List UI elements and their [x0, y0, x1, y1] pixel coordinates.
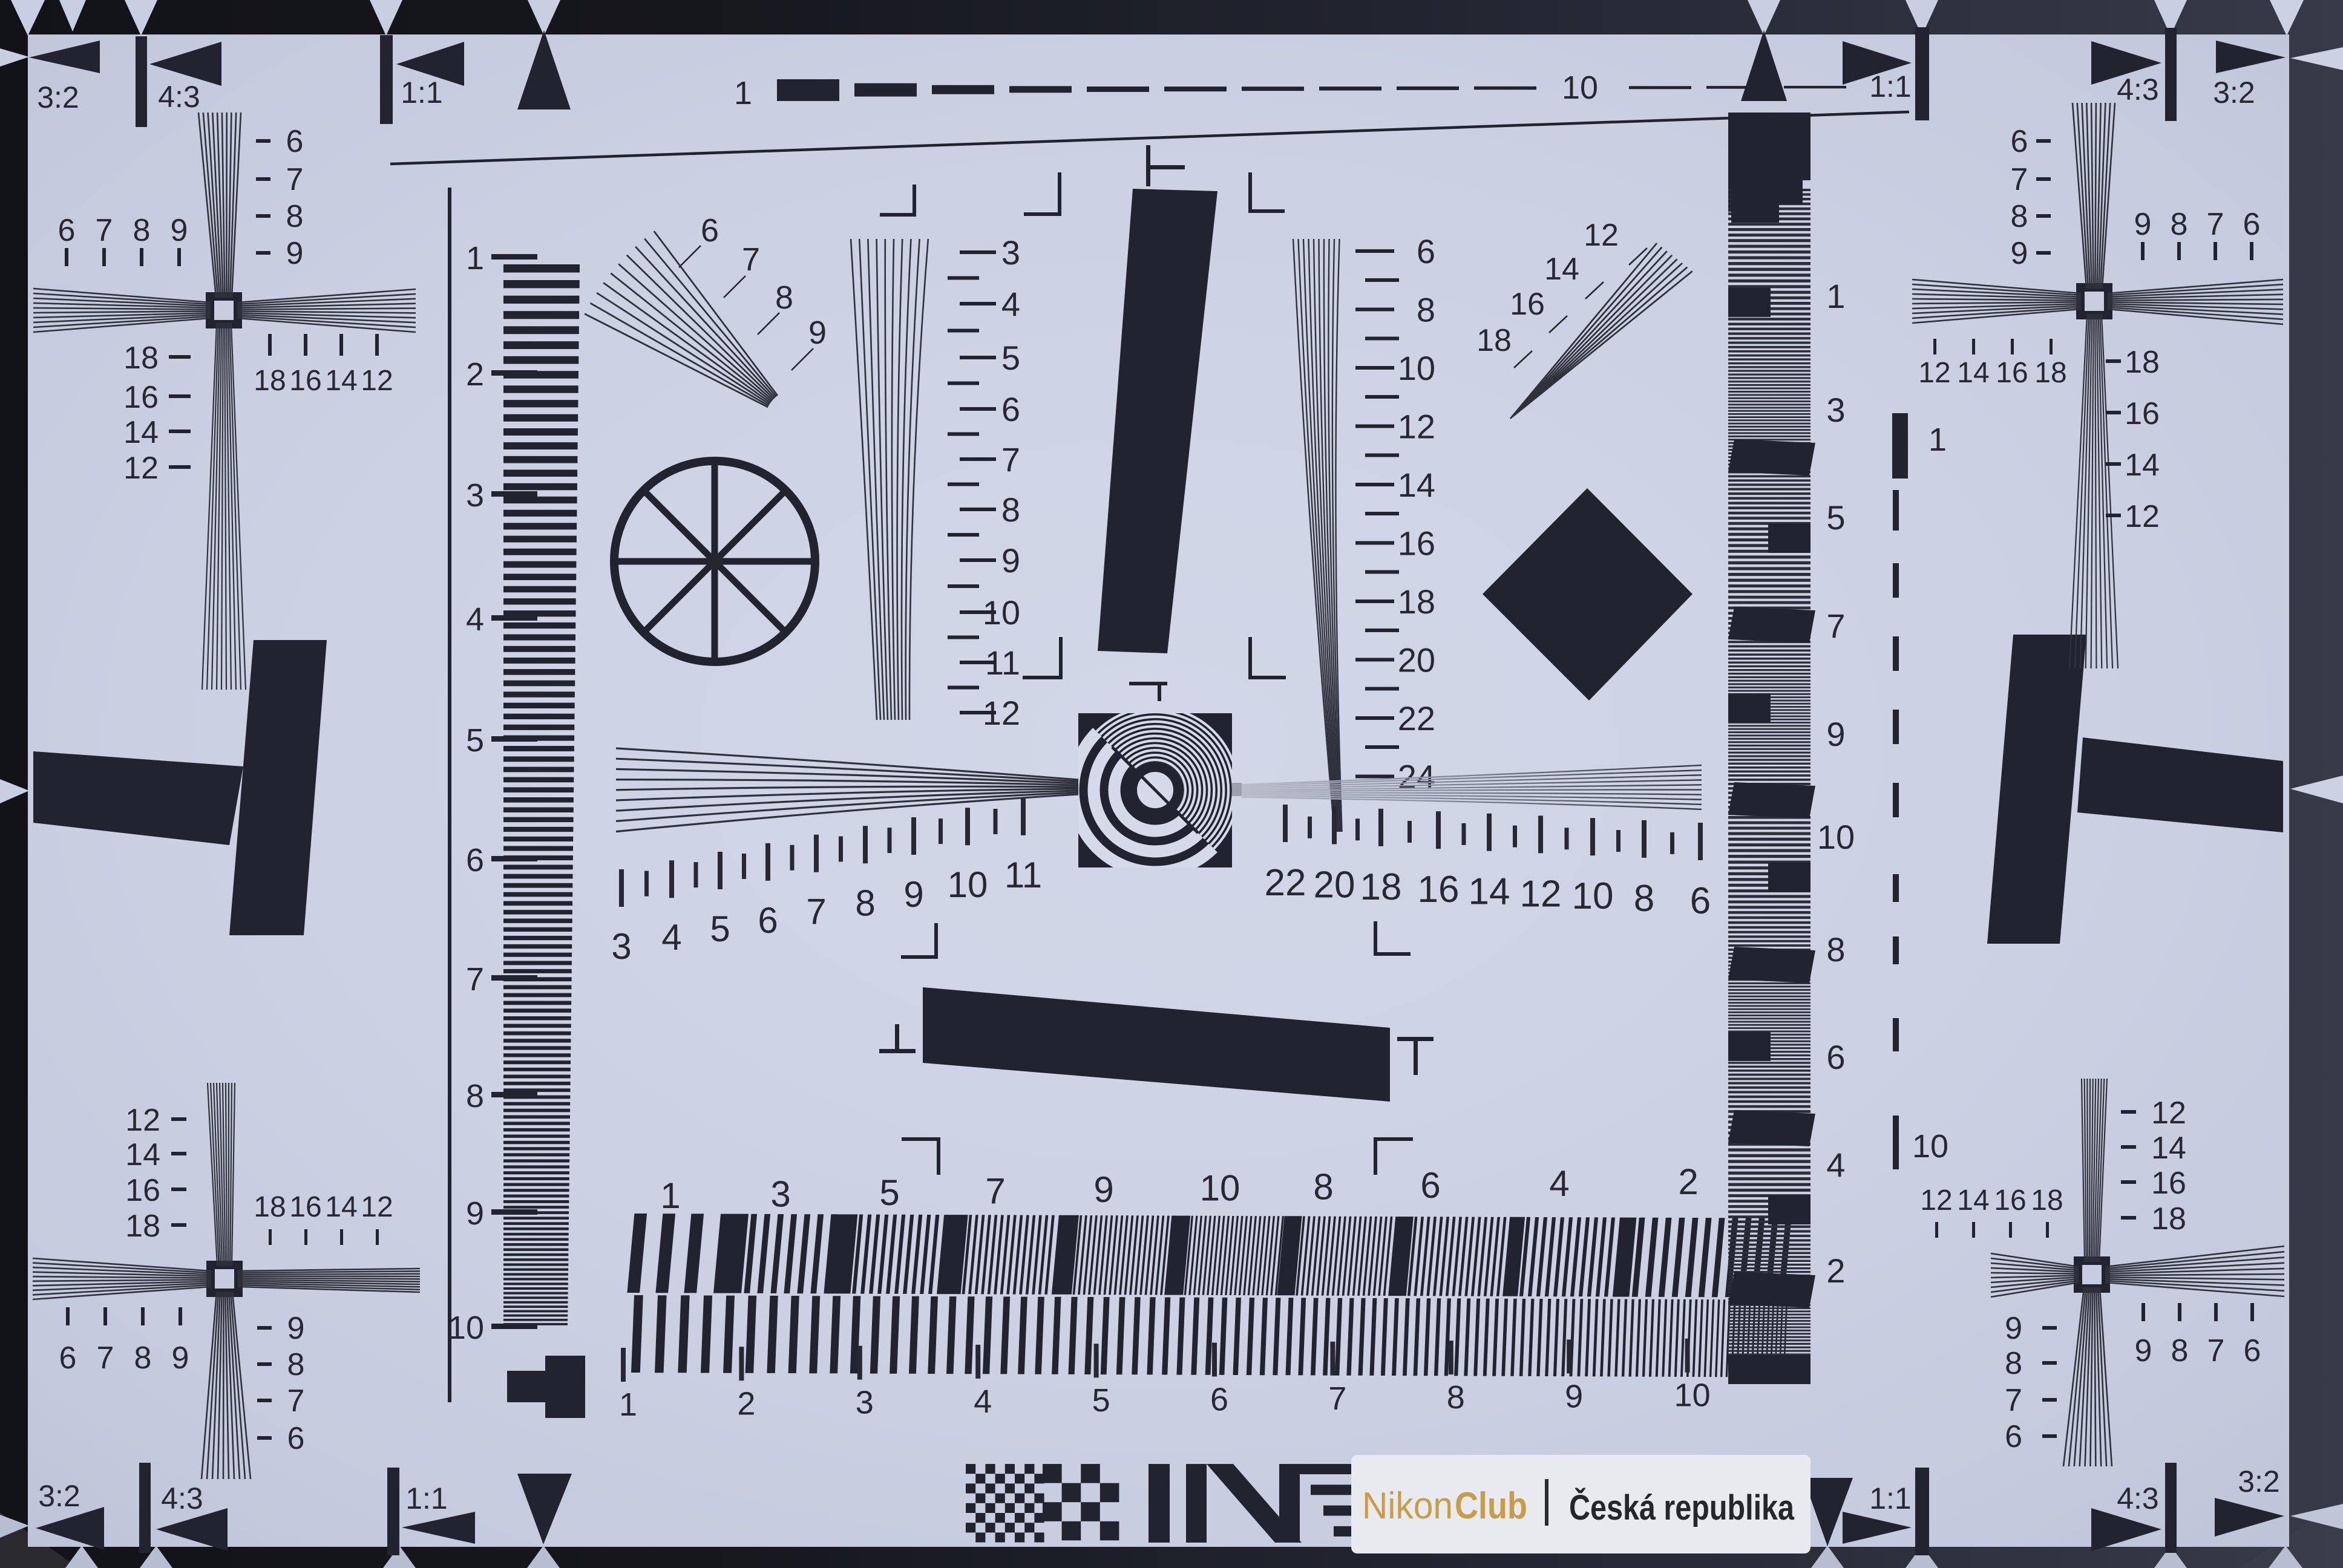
svg-text:5: 5: [879, 1172, 899, 1213]
svg-text:4: 4: [974, 1383, 992, 1420]
svg-text:6: 6: [287, 1421, 305, 1456]
svg-text:12: 12: [361, 1191, 393, 1223]
svg-text:8: 8: [286, 199, 304, 234]
svg-text:1: 1: [466, 240, 484, 276]
svg-text:3: 3: [770, 1174, 790, 1214]
svg-text:12: 12: [125, 1103, 160, 1138]
svg-text:6: 6: [1420, 1165, 1440, 1206]
svg-text:12: 12: [1920, 1184, 1952, 1217]
svg-text:8: 8: [2171, 1333, 2189, 1368]
svg-text:6: 6: [286, 124, 304, 159]
svg-text:8: 8: [1826, 930, 1845, 969]
svg-text:1:1: 1:1: [1869, 70, 1912, 103]
svg-text:3: 3: [1001, 234, 1020, 272]
svg-text:18: 18: [125, 1209, 160, 1244]
svg-text:3:2: 3:2: [38, 1479, 80, 1513]
svg-text:12: 12: [1918, 357, 1950, 389]
svg-text:8: 8: [775, 279, 793, 316]
svg-text:8: 8: [1447, 1379, 1465, 1416]
svg-text:12: 12: [123, 451, 159, 486]
svg-text:4:3: 4:3: [2117, 1481, 2159, 1515]
svg-text:6: 6: [2243, 207, 2261, 242]
svg-text:22: 22: [1398, 699, 1435, 737]
svg-text:8: 8: [466, 1078, 484, 1114]
svg-text:7: 7: [466, 961, 484, 998]
svg-text:7: 7: [1001, 440, 1020, 479]
svg-text:7: 7: [1328, 1380, 1346, 1417]
svg-text:18: 18: [2125, 345, 2160, 380]
svg-text:1: 1: [660, 1175, 680, 1216]
svg-text:9: 9: [1001, 541, 1020, 580]
svg-text:18: 18: [1476, 323, 1512, 358]
svg-text:2: 2: [466, 356, 484, 393]
svg-text:11: 11: [1004, 855, 1042, 895]
svg-text:2: 2: [1678, 1161, 1698, 1202]
svg-text:14: 14: [1469, 871, 1510, 913]
svg-text:9: 9: [286, 236, 304, 271]
svg-text:9: 9: [1565, 1378, 1583, 1414]
svg-text:3:2: 3:2: [2238, 1465, 2280, 1498]
svg-text:10: 10: [948, 864, 988, 905]
svg-text:12: 12: [2125, 499, 2160, 534]
svg-text:16: 16: [289, 1191, 321, 1223]
svg-text:3: 3: [1826, 391, 1845, 429]
svg-text:10: 10: [1817, 818, 1855, 856]
svg-text:6: 6: [466, 842, 484, 878]
svg-text:6: 6: [1826, 1038, 1845, 1076]
svg-text:7: 7: [286, 162, 304, 197]
svg-text:7: 7: [96, 213, 113, 248]
svg-text:14: 14: [325, 1191, 357, 1223]
svg-text:9: 9: [2005, 1311, 2022, 1346]
svg-text:10: 10: [1562, 70, 1598, 106]
svg-text:1: 1: [1826, 277, 1845, 315]
svg-text:4:3: 4:3: [158, 80, 200, 114]
svg-text:16: 16: [1398, 524, 1435, 563]
svg-text:5: 5: [466, 722, 484, 759]
svg-text:8: 8: [855, 883, 875, 923]
svg-text:14: 14: [325, 365, 357, 397]
svg-text:6: 6: [1417, 232, 1435, 270]
svg-text:9: 9: [287, 1311, 305, 1346]
svg-text:10: 10: [1200, 1168, 1240, 1209]
svg-text:3:2: 3:2: [37, 80, 79, 114]
svg-text:1: 1: [619, 1387, 637, 1423]
svg-text:7: 7: [742, 241, 760, 278]
svg-text:14: 14: [123, 415, 159, 450]
svg-text:6: 6: [59, 1341, 77, 1376]
svg-text:4: 4: [661, 917, 681, 958]
svg-text:9: 9: [2011, 236, 2028, 271]
svg-text:7: 7: [2207, 207, 2224, 242]
svg-text:16: 16: [1996, 357, 2028, 389]
svg-text:14: 14: [1957, 357, 1989, 389]
svg-text:4: 4: [466, 601, 484, 638]
svg-text:10: 10: [1398, 349, 1435, 387]
svg-text:12: 12: [1584, 218, 1619, 253]
svg-text:6: 6: [58, 213, 76, 248]
svg-text:20: 20: [1314, 864, 1355, 906]
svg-text:9: 9: [903, 874, 923, 915]
svg-text:4:3: 4:3: [2117, 73, 2159, 106]
svg-text:9: 9: [808, 315, 827, 351]
svg-text:14: 14: [1957, 1184, 1989, 1217]
svg-text:9: 9: [466, 1195, 484, 1232]
svg-text:8: 8: [133, 213, 151, 248]
svg-text:5: 5: [1826, 498, 1845, 537]
svg-text:Club: Club: [1455, 1485, 1527, 1527]
svg-text:7: 7: [2005, 1383, 2022, 1418]
svg-text:16: 16: [1418, 869, 1460, 910]
svg-text:16: 16: [125, 1173, 160, 1208]
svg-text:3: 3: [856, 1385, 874, 1421]
svg-text:Česká republika: Česká republika: [1569, 1488, 1795, 1527]
svg-text:9: 9: [172, 1341, 189, 1376]
svg-text:18: 18: [254, 365, 286, 397]
svg-text:16: 16: [289, 365, 321, 397]
svg-text:18: 18: [2151, 1201, 2186, 1236]
svg-text:10: 10: [448, 1310, 484, 1346]
svg-text:8: 8: [1001, 491, 1020, 529]
svg-text:8: 8: [1634, 878, 1654, 920]
svg-text:18: 18: [1360, 866, 1402, 908]
svg-text:6: 6: [758, 900, 778, 941]
svg-text:6: 6: [2011, 124, 2028, 159]
svg-text:9: 9: [2135, 1333, 2152, 1368]
svg-text:1:1: 1:1: [405, 1481, 448, 1515]
svg-text:12: 12: [1398, 408, 1435, 446]
svg-text:3: 3: [611, 926, 631, 967]
svg-text:7: 7: [806, 892, 826, 932]
svg-text:4: 4: [1549, 1163, 1569, 1204]
svg-text:20: 20: [1398, 641, 1435, 679]
svg-text:12: 12: [2151, 1096, 2186, 1131]
svg-text:22: 22: [1265, 862, 1306, 904]
svg-text:7: 7: [97, 1341, 114, 1376]
svg-text:16: 16: [1510, 287, 1545, 322]
svg-text:8: 8: [1417, 291, 1435, 329]
svg-text:3: 3: [466, 477, 484, 514]
svg-text:1: 1: [734, 75, 752, 111]
svg-text:3:2: 3:2: [2213, 76, 2255, 109]
svg-text:10: 10: [1572, 875, 1614, 917]
svg-text:8: 8: [2005, 1346, 2022, 1381]
svg-text:10: 10: [1674, 1377, 1711, 1414]
svg-text:18: 18: [2034, 357, 2066, 389]
svg-text:5: 5: [1001, 339, 1020, 377]
svg-text:9: 9: [2134, 207, 2152, 242]
svg-text:1:1: 1:1: [1869, 1481, 1912, 1515]
svg-text:8: 8: [2171, 207, 2188, 242]
svg-text:1: 1: [1928, 422, 1947, 458]
svg-text:18: 18: [2031, 1184, 2063, 1217]
svg-text:6: 6: [701, 212, 719, 249]
svg-text:Nikon: Nikon: [1362, 1485, 1453, 1527]
svg-text:1:1: 1:1: [401, 76, 443, 109]
svg-text:7: 7: [287, 1383, 305, 1419]
svg-text:7: 7: [985, 1171, 1005, 1212]
svg-text:4:3: 4:3: [161, 1481, 203, 1515]
svg-text:8: 8: [134, 1341, 152, 1376]
svg-text:14: 14: [1398, 466, 1435, 504]
svg-text:4: 4: [1001, 285, 1020, 323]
svg-text:7: 7: [1826, 607, 1845, 645]
svg-text:16: 16: [2151, 1166, 2186, 1201]
svg-text:16: 16: [1994, 1184, 2026, 1217]
svg-text:14: 14: [1544, 252, 1579, 287]
svg-text:6: 6: [1001, 390, 1020, 428]
svg-text:5: 5: [1092, 1382, 1110, 1419]
svg-text:6: 6: [1690, 880, 1711, 922]
svg-text:6: 6: [2244, 1333, 2261, 1368]
svg-text:7: 7: [2011, 162, 2028, 197]
svg-text:14: 14: [2125, 448, 2160, 483]
svg-text:7: 7: [2207, 1333, 2225, 1368]
svg-text:14: 14: [2151, 1131, 2186, 1166]
svg-text:16: 16: [2125, 396, 2160, 431]
svg-text:16: 16: [123, 380, 159, 415]
svg-text:8: 8: [287, 1347, 305, 1382]
svg-text:5: 5: [710, 909, 730, 949]
svg-text:18: 18: [1398, 583, 1435, 621]
svg-text:10: 10: [1912, 1128, 1948, 1165]
svg-text:9: 9: [1093, 1169, 1113, 1210]
svg-text:2: 2: [1826, 1252, 1845, 1290]
svg-text:12: 12: [1520, 873, 1562, 915]
svg-text:8: 8: [1313, 1166, 1333, 1207]
svg-text:4: 4: [1826, 1146, 1845, 1184]
svg-text:6: 6: [1210, 1382, 1228, 1418]
svg-text:14: 14: [125, 1137, 160, 1172]
svg-text:8: 8: [2011, 199, 2028, 234]
svg-text:9: 9: [1826, 715, 1845, 753]
svg-text:18: 18: [123, 341, 159, 376]
svg-text:6: 6: [2005, 1419, 2022, 1454]
svg-text:2: 2: [737, 1385, 755, 1422]
svg-text:9: 9: [171, 213, 188, 248]
svg-text:18: 18: [254, 1191, 286, 1223]
svg-text:12: 12: [361, 365, 393, 397]
